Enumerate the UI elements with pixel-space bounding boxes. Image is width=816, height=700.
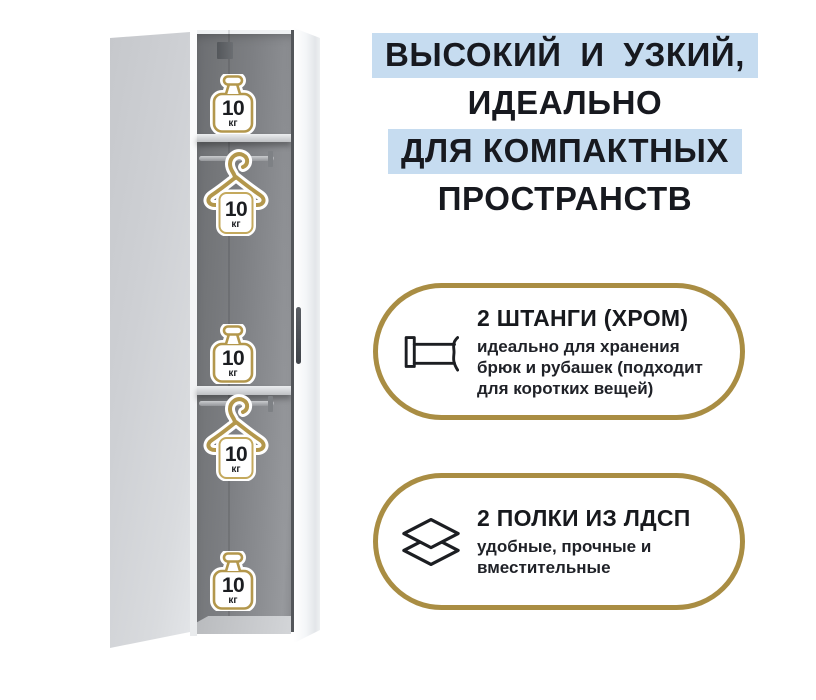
door-gap-line [291,30,294,632]
door-handle [296,307,301,364]
load-value: 10 [219,199,253,220]
headline-line-4: ПРОСТРАНСТВ [425,177,706,222]
shelf [197,134,291,142]
headline-line-1: ВЫСОКИЙ И УЗКИЙ, [372,33,758,78]
wardrobe-front-edge [190,30,197,636]
load-unit: кг [210,596,256,606]
wardrobe-interior: 10 кг 10 кг [197,30,291,634]
weight-capacity-badge: 10 кг [210,324,256,384]
headline-line-2: ИДЕАЛЬНО [455,81,676,126]
load-unit: кг [219,220,253,230]
feature-card-shelves: 2 ПОЛКИ ИЗ ЛДСП удобные, прочные и вмест… [373,473,745,610]
load-value: 10 [210,575,256,596]
load-unit: кг [210,369,256,379]
wardrobe-door [294,28,320,646]
load-value: 10 [210,98,256,119]
clothes-rail-icon [401,331,461,373]
wardrobe-side-panel [110,32,190,648]
headline: ВЫСОКИЙ И УЗКИЙ, ИДЕАЛЬНО ДЛЯ КОМПАКТНЫХ… [330,33,800,225]
feature-card-rails: 2 ШТАНГИ (ХРОМ) идеально для хранения бр… [373,283,745,420]
stacked-shelves-icon [401,516,461,568]
load-unit: кг [210,119,256,129]
feature-text: 2 ШТАНГИ (ХРОМ) идеально для хранения бр… [477,305,703,399]
load-value: 10 [210,348,256,369]
wardrobe-illustration: 10 кг 10 кг [108,28,320,648]
weight-capacity-badge: 10 кг [210,74,256,134]
feature-text: 2 ПОЛКИ ИЗ ЛДСП удобные, прочные и вмест… [477,505,691,578]
feature-title: 2 ПОЛКИ ИЗ ЛДСП [477,505,691,532]
hanger-capacity-badge: 10 кг [202,148,272,236]
headline-line-3: ДЛЯ КОМПАКТНЫХ [388,129,742,174]
hinge-block [217,42,233,59]
load-value: 10 [219,444,253,465]
feature-description: идеально для хранения брюк и рубашек (по… [477,336,703,399]
product-infographic: 10 кг 10 кг [0,0,816,700]
wardrobe-floor [197,616,291,634]
feature-title: 2 ШТАНГИ (ХРОМ) [477,305,703,332]
hanger-capacity-badge: 10 кг [202,393,272,481]
feature-description: удобные, прочные и вместительные [477,536,691,578]
load-unit: кг [219,465,253,475]
weight-capacity-badge: 10 кг [210,551,256,611]
